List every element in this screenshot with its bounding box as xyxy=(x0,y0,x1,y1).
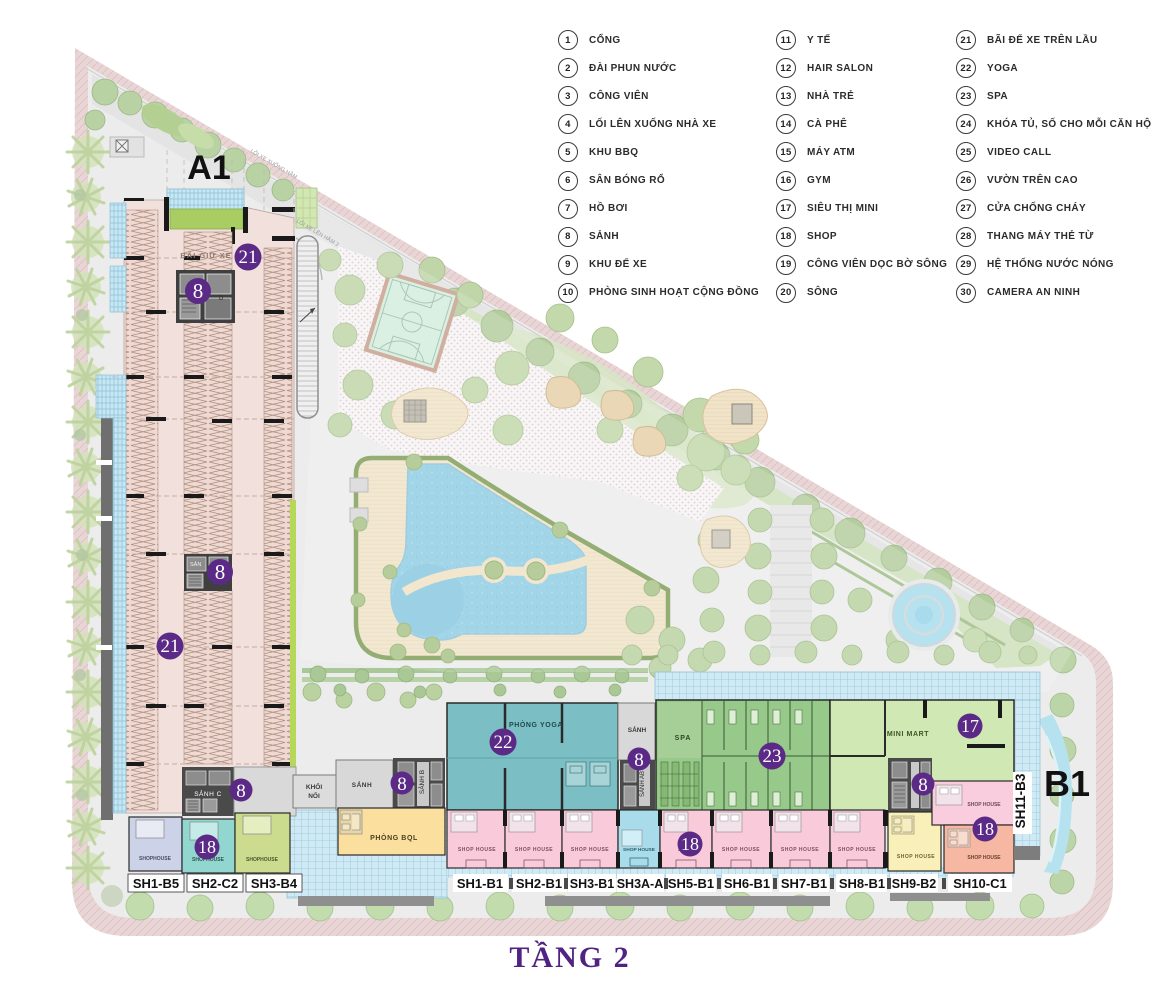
svg-text:SHOP HOUSE: SHOP HOUSE xyxy=(515,847,553,853)
svg-text:SH1-B5: SH1-B5 xyxy=(133,876,179,891)
svg-text:SHOPHOUSE: SHOPHOUSE xyxy=(139,856,172,862)
svg-text:SH1-B1: SH1-B1 xyxy=(457,876,503,891)
svg-text:18: 18 xyxy=(198,837,216,857)
svg-text:8: 8 xyxy=(397,774,407,795)
svg-text:21: 21 xyxy=(239,247,258,268)
svg-text:SHOP HOUSE: SHOP HOUSE xyxy=(967,802,1001,808)
svg-text:SH10-C1: SH10-C1 xyxy=(953,876,1006,891)
svg-text:SHOP HOUSE: SHOP HOUSE xyxy=(623,847,656,853)
svg-text:SPA: SPA xyxy=(675,735,692,742)
svg-text:SHOPHOUSE: SHOPHOUSE xyxy=(246,857,279,863)
svg-text:18: 18 xyxy=(681,834,699,854)
svg-text:SH2-C2: SH2-C2 xyxy=(192,876,238,891)
svg-text:A1: A1 xyxy=(187,149,230,187)
svg-text:17: 17 xyxy=(961,716,979,736)
svg-text:BÃI GIỮ XE: BÃI GIỮ XE xyxy=(180,251,231,260)
svg-text:SHOP HOUSE: SHOP HOUSE xyxy=(897,854,935,860)
svg-text:21: 21 xyxy=(161,636,180,657)
svg-text:SH3-B4: SH3-B4 xyxy=(251,876,298,891)
svg-text:SẢN: SẢN xyxy=(190,561,201,568)
svg-text:8: 8 xyxy=(193,279,204,303)
svg-text:SHOP HOUSE: SHOP HOUSE xyxy=(838,847,876,853)
svg-text:8: 8 xyxy=(215,560,226,584)
svg-text:PHÒNG YOGA: PHÒNG YOGA xyxy=(509,720,563,729)
svg-text:8: 8 xyxy=(236,781,246,802)
svg-text:SHOP HOUSE: SHOP HOUSE xyxy=(458,847,496,853)
svg-text:22: 22 xyxy=(494,732,513,753)
svg-text:SH6-B1: SH6-B1 xyxy=(724,876,770,891)
svg-text:SH9-B2: SH9-B2 xyxy=(892,877,937,891)
svg-text:SH7-B1: SH7-B1 xyxy=(781,876,827,891)
svg-text:D: D xyxy=(219,296,224,302)
svg-text:SH5-B1: SH5-B1 xyxy=(668,876,714,891)
svg-text:SH3A-A: SH3A-A xyxy=(617,877,664,891)
svg-text:SH3-B1: SH3-B1 xyxy=(570,877,615,891)
svg-text:MINI MART: MINI MART xyxy=(887,731,929,738)
svg-text:SH11-B3: SH11-B3 xyxy=(1013,773,1028,828)
svg-text:B1: B1 xyxy=(1044,763,1090,804)
svg-text:SẢNH: SẢNH xyxy=(628,725,647,734)
svg-text:SẢNH: SẢNH xyxy=(352,780,372,789)
svg-text:SHOP HOUSE: SHOP HOUSE xyxy=(722,847,760,853)
svg-text:PHÒNG BQL: PHÒNG BQL xyxy=(370,833,418,842)
svg-text:SHOP HOUSE: SHOP HOUSE xyxy=(967,855,1001,861)
svg-text:SHOP HOUSE: SHOP HOUSE xyxy=(571,847,609,853)
svg-text:8: 8 xyxy=(634,750,644,771)
svg-text:23: 23 xyxy=(763,746,782,767)
svg-text:SH2-B1: SH2-B1 xyxy=(516,876,562,891)
svg-text:SHOP HOUSE: SHOP HOUSE xyxy=(781,847,819,853)
svg-text:SẢNH AB: SẢNH AB xyxy=(639,771,646,797)
svg-text:SẢNH C: SẢNH C xyxy=(194,789,222,798)
svg-text:8: 8 xyxy=(918,775,928,796)
svg-text:18: 18 xyxy=(976,819,994,839)
svg-text:SẢNH B: SẢNH B xyxy=(417,770,426,794)
svg-text:SH8-B1: SH8-B1 xyxy=(839,876,885,891)
